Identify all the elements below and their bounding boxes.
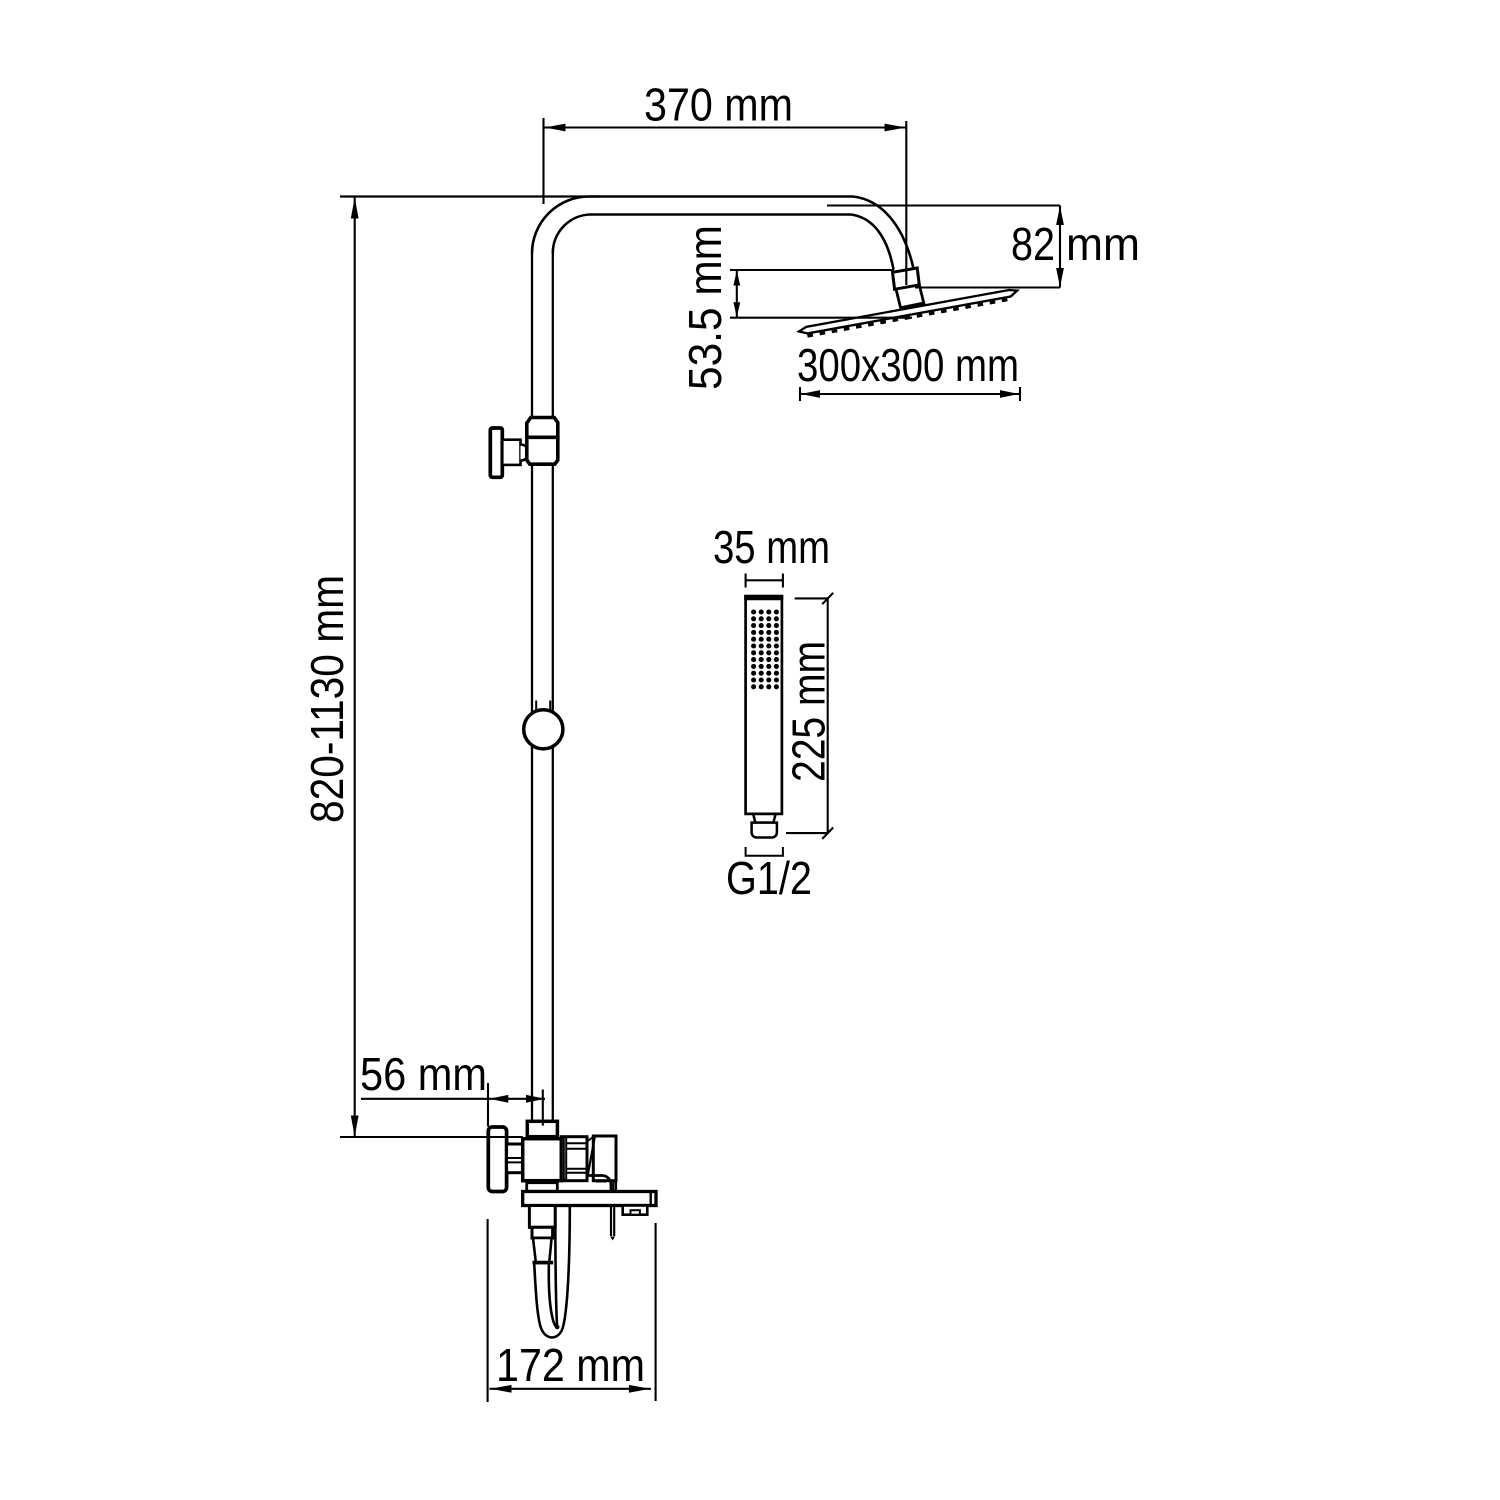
svg-text:225 mm: 225 mm xyxy=(783,641,835,782)
svg-text:G1/2: G1/2 xyxy=(726,852,812,904)
svg-text:mm: mm xyxy=(1066,218,1140,270)
svg-text:82: 82 xyxy=(1011,218,1055,270)
svg-text:56 mm: 56 mm xyxy=(360,1048,487,1100)
svg-text:820-1130 mm: 820-1130 mm xyxy=(301,575,353,823)
svg-text:370 mm: 370 mm xyxy=(644,79,793,131)
svg-text:172 mm: 172 mm xyxy=(496,1339,645,1391)
svg-text:300x300 mm: 300x300 mm xyxy=(797,339,1019,391)
svg-text:53.5 mm: 53.5 mm xyxy=(679,225,731,390)
svg-text:35 mm: 35 mm xyxy=(713,521,830,573)
